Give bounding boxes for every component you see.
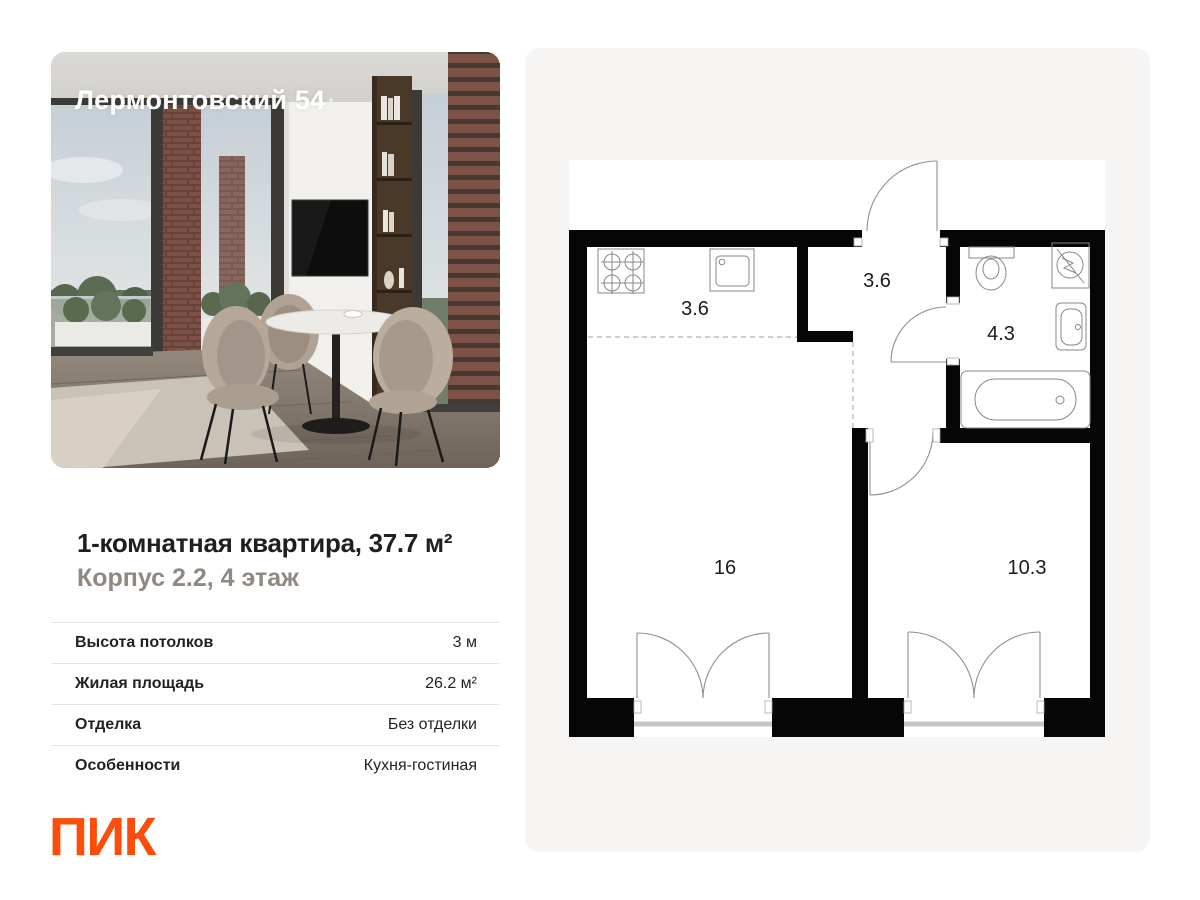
listing-title: 1-комнатная квартира, 37.7 м² (77, 528, 452, 559)
floorplan-card: 3.6 3.6 4.3 16 10.3 (525, 48, 1150, 852)
detail-value: 26.2 м² (425, 675, 477, 693)
apartment-photo[interactable]: Лермонтовский 54 (51, 52, 500, 468)
room-label-bedroom: 10.3 (1008, 557, 1047, 579)
window-left (51, 98, 163, 366)
pik-logo[interactable]: ПИК (49, 810, 155, 864)
listing-subtitle: Корпус 2.2, 4 этаж (77, 564, 299, 593)
room-label-bathroom: 4.3 (987, 323, 1015, 345)
detail-label: Особенности (75, 757, 180, 775)
room-label-kitchen: 3.6 (681, 298, 709, 320)
detail-value: Без отделки (388, 716, 477, 734)
detail-row: Жилая площадь 26.2 м² (51, 663, 500, 704)
detail-row: Отделка Без отделки (51, 704, 500, 745)
radiator-left (51, 347, 153, 356)
detail-value: Кухня-гостиная (364, 757, 477, 775)
project-title-overlay: Лермонтовский 54 (75, 85, 325, 116)
details-table: Высота потолков 3 м Жилая площадь 26.2 м… (51, 622, 500, 786)
detail-value: 3 м (453, 634, 477, 652)
detail-label: Жилая площадь (75, 675, 204, 693)
detail-row: Особенности Кухня-гостиная (51, 745, 500, 786)
detail-label: Отделка (75, 716, 141, 734)
room-label-living: 16 (714, 557, 736, 579)
detail-row: Высота потолков 3 м (51, 622, 500, 663)
room-label-hallway: 3.6 (863, 270, 891, 292)
detail-label: Высота потолков (75, 634, 213, 652)
brick-pillar (163, 102, 201, 366)
floorplan-svg: 3.6 3.6 4.3 16 10.3 (565, 155, 1110, 745)
